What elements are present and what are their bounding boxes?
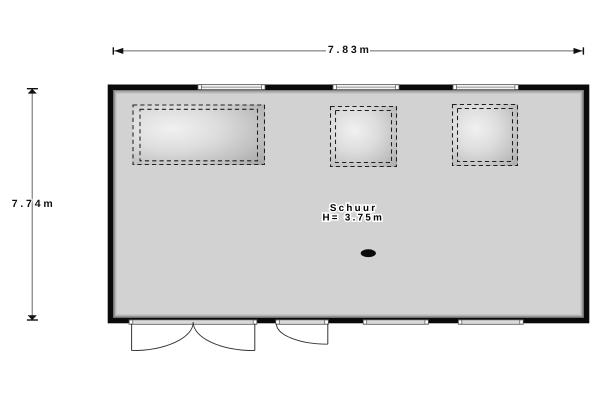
svg-text:H= 3.75m: H= 3.75m [322,213,384,224]
svg-text:7.83m: 7.83m [328,44,372,56]
svg-text:7.74m: 7.74m [12,198,56,210]
